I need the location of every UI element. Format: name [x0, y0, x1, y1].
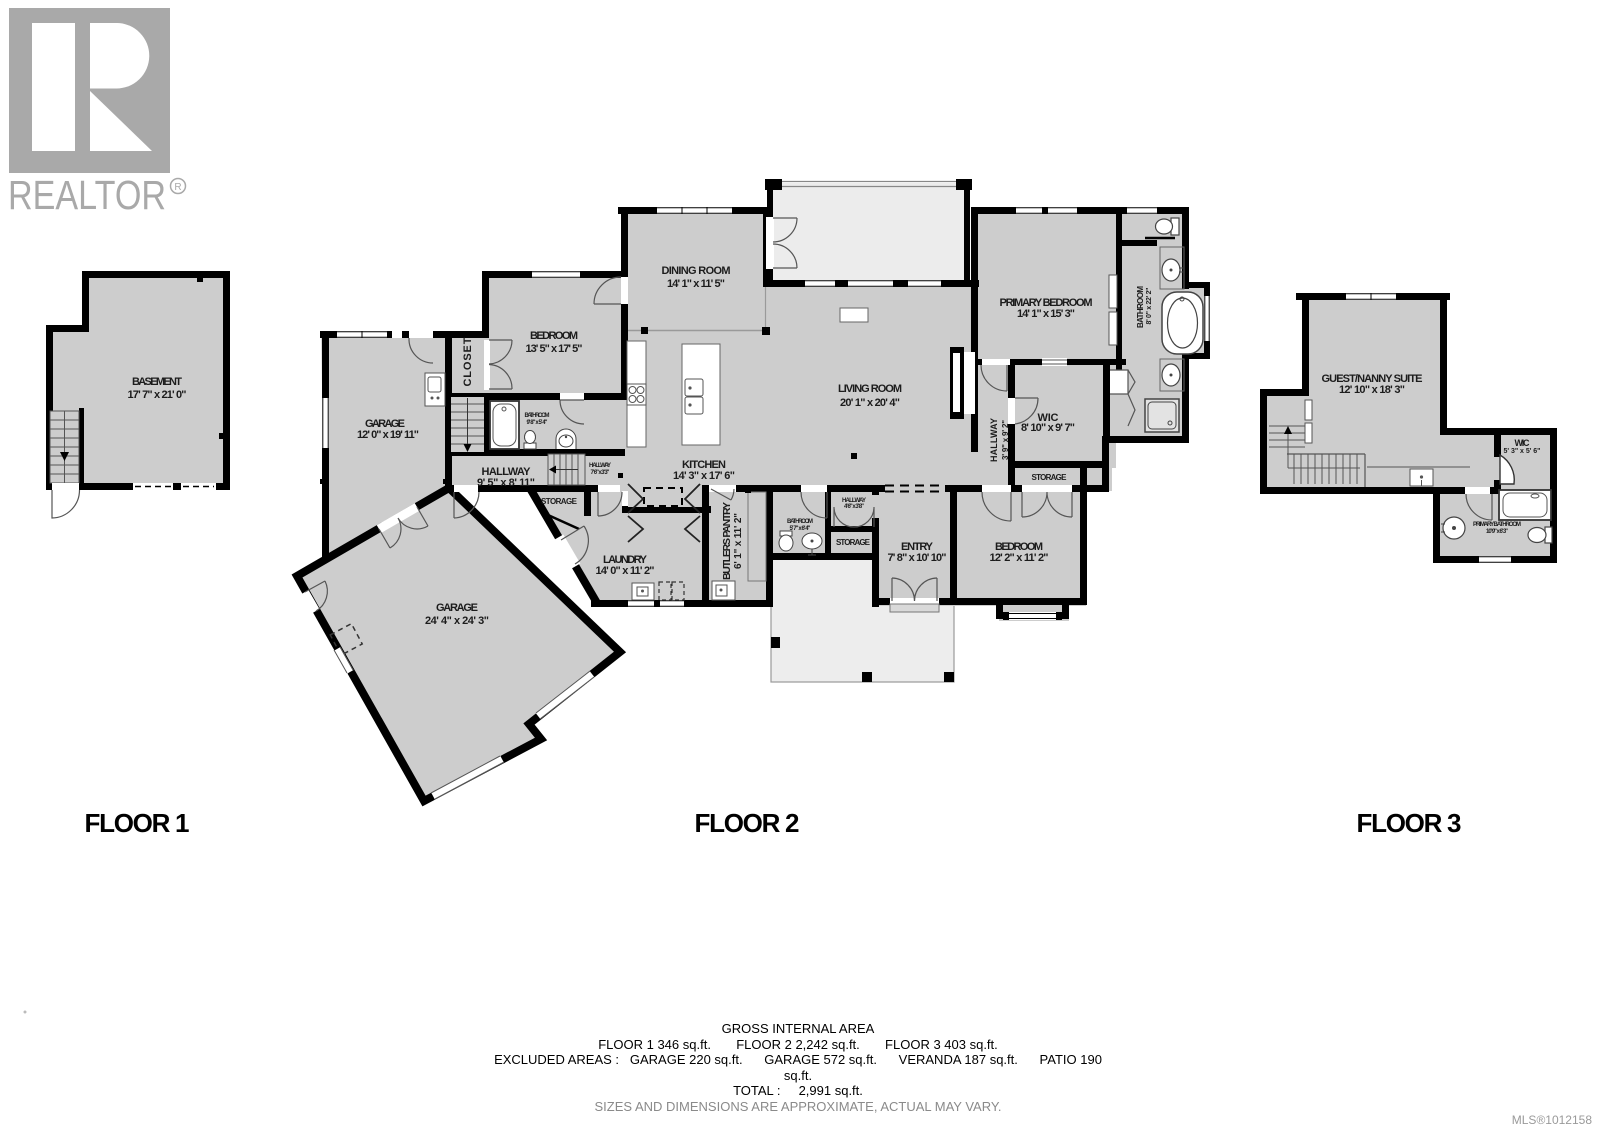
- svg-text:FLOOR 1 346 sq.ft. FLOOR: FLOOR 1 346 sq.ft. FLOOR 2 2,242 sq.ft. …: [598, 1037, 998, 1052]
- svg-text:PRIMARY BATHROOM: PRIMARY BATHROOM: [1473, 522, 1521, 528]
- svg-text:EXCLUDED AREAS : GARAGE 220: EXCLUDED AREAS : GARAGE 220 sq.ft. GARAG…: [494, 1052, 1102, 1067]
- svg-text:R: R: [174, 182, 181, 193]
- svg-text:FLOOR 3: FLOOR 3: [1357, 808, 1462, 838]
- svg-text:DINING ROOM: DINING ROOM: [662, 265, 731, 277]
- svg-text:BATHROOM: BATHROOM: [525, 413, 550, 419]
- svg-text:9' 5" x 8' 11": 9' 5" x 8' 11": [477, 477, 535, 489]
- svg-text:BUTLERS PANTRY: BUTLERS PANTRY: [721, 502, 733, 580]
- svg-text:FLOOR 2: FLOOR 2: [695, 808, 800, 838]
- svg-text:6' 1" x 11' 2": 6' 1" x 11' 2": [733, 513, 744, 569]
- svg-text:STORAGE: STORAGE: [541, 497, 578, 506]
- svg-text:14' 1" x 15' 3": 14' 1" x 15' 3": [1017, 308, 1075, 320]
- svg-text:14' 3" x 17' 6": 14' 3" x 17' 6": [673, 470, 735, 482]
- svg-text:24' 4" x 24' 3": 24' 4" x 24' 3": [425, 615, 489, 627]
- svg-text:MLS®1012158: MLS®1012158: [1512, 1113, 1593, 1127]
- svg-text:3' 9" x 9' 2": 3' 9" x 9' 2": [1001, 420, 1010, 460]
- svg-text:12' 2" x 11' 2": 12' 2" x 11' 2": [990, 552, 1049, 564]
- svg-text:STORAGE: STORAGE: [836, 538, 871, 547]
- svg-text:GROSS INTERNAL AREA: GROSS INTERNAL AREA: [722, 1021, 875, 1036]
- svg-text:13' 5" x 17' 5": 13' 5" x 17' 5": [526, 343, 583, 355]
- svg-text:10' 9" x 6' 3": 10' 9" x 6' 3": [1486, 529, 1508, 535]
- svg-text:sq.ft.: sq.ft.: [784, 1068, 812, 1083]
- svg-text:12' 10" x 18' 3": 12' 10" x 18' 3": [1339, 384, 1405, 396]
- svg-text:HALLWAY: HALLWAY: [589, 463, 611, 469]
- svg-text:HALLWAY: HALLWAY: [989, 418, 999, 462]
- svg-text:17' 7" x 21' 0": 17' 7" x 21' 0": [128, 389, 187, 401]
- svg-text:20' 1" x 20' 4": 20' 1" x 20' 4": [840, 397, 900, 409]
- svg-text:WIC: WIC: [1515, 438, 1531, 448]
- svg-text:SIZES AND DIMENSIONS ARE APPRO: SIZES AND DIMENSIONS ARE APPROXIMATE, AC…: [595, 1099, 1002, 1114]
- svg-text:9' 8" x 5' 4": 9' 8" x 5' 4": [527, 420, 548, 426]
- svg-text:LIVING ROOM: LIVING ROOM: [838, 383, 902, 395]
- svg-text:12' 0" x 19' 11": 12' 0" x 19' 11": [357, 429, 419, 441]
- svg-text:8' 0" x 22' 2": 8' 0" x 22' 2": [1146, 288, 1153, 325]
- svg-text:8' 10" x 9' 7": 8' 10" x 9' 7": [1021, 422, 1075, 434]
- svg-text:STORAGE: STORAGE: [1032, 473, 1068, 482]
- svg-text:5' 7" x 6' 4": 5' 7" x 6' 4": [790, 526, 811, 532]
- svg-text:7' 6" x 3' 3": 7' 6" x 3' 3": [591, 470, 610, 476]
- svg-text:BATHROOM: BATHROOM: [1136, 286, 1145, 328]
- svg-text:4' 6" x 3' 8": 4' 6" x 3' 8": [844, 504, 864, 510]
- svg-text:BASEMENT: BASEMENT: [132, 376, 182, 388]
- svg-text:BEDROOM: BEDROOM: [530, 330, 578, 342]
- svg-text:BATHROOM: BATHROOM: [787, 519, 813, 525]
- svg-text:TOTAL : 2,991 sq.ft.: TOTAL : 2,991 sq.ft.: [733, 1083, 863, 1098]
- svg-text:FLOOR 1: FLOOR 1: [85, 808, 190, 838]
- svg-text:14' 0" x 11' 2": 14' 0" x 11' 2": [596, 565, 655, 577]
- svg-text:7' 8" x 10' 10": 7' 8" x 10' 10": [888, 552, 947, 564]
- svg-text:CLOSET: CLOSET: [462, 337, 474, 386]
- svg-text:REALTOR: REALTOR: [8, 172, 166, 218]
- svg-text:GARAGE: GARAGE: [436, 602, 478, 614]
- svg-text:14' 1" x 11' 5": 14' 1" x 11' 5": [667, 278, 725, 290]
- svg-text:5' 3" x 5' 6": 5' 3" x 5' 6": [1504, 448, 1541, 455]
